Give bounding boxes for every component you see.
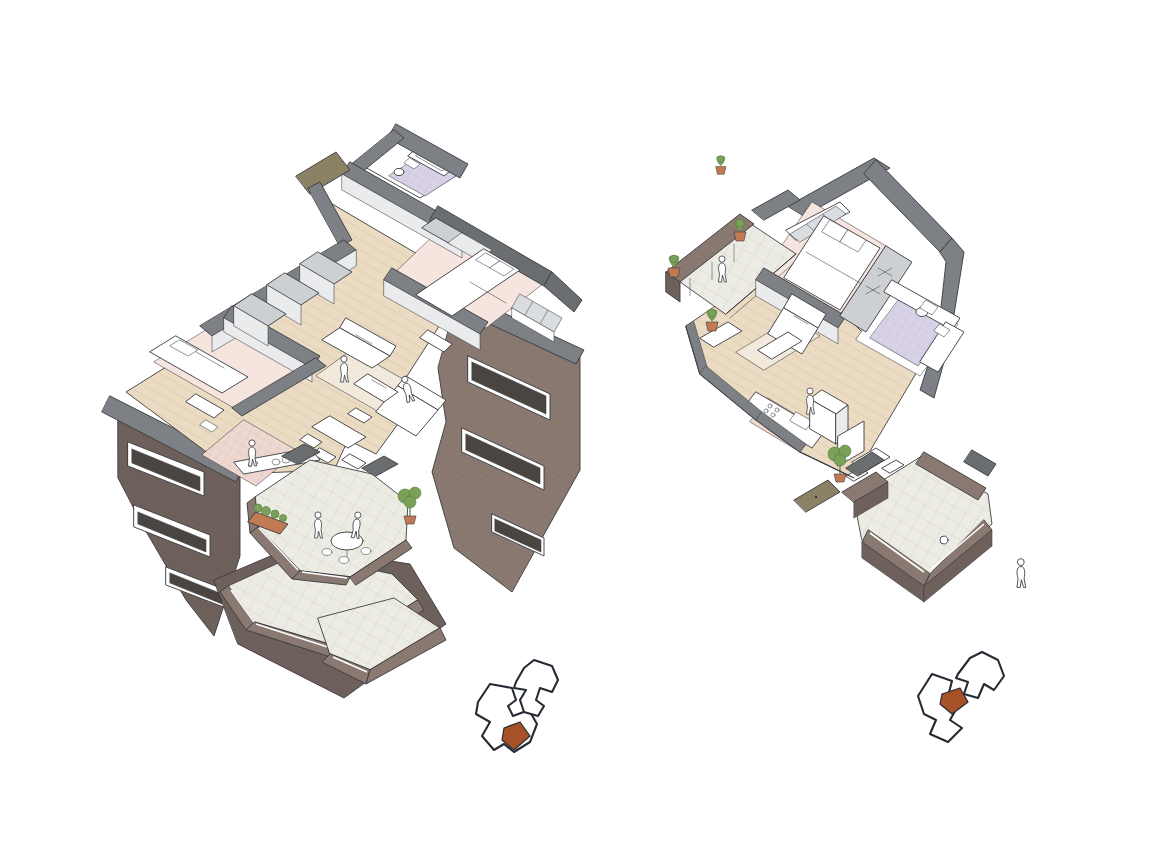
toilet <box>394 168 404 175</box>
drawing-canvas <box>0 0 1170 850</box>
bag <box>940 536 948 544</box>
axonometric-illustration <box>0 0 1170 850</box>
